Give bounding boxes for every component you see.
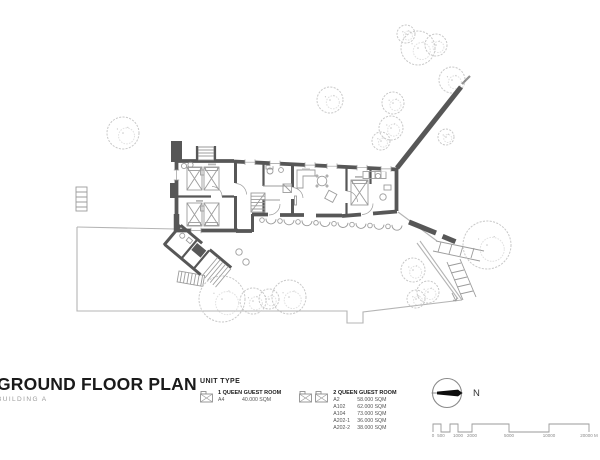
facade-planting-row	[260, 218, 402, 230]
unit-type-legend: UNIT TYPE 1 QUEEN GUEST ROOM A440.000 SQ…	[200, 378, 400, 432]
stepped-path	[433, 241, 484, 301]
boundary-steps-icon	[76, 187, 87, 211]
building-wing	[164, 225, 232, 288]
unit-row: A202-136.000 SQM	[333, 418, 396, 425]
scale-labels: 05001000200050001000020000 M	[431, 433, 597, 441]
north-label: N	[473, 388, 480, 399]
scale-label: 1000	[453, 433, 463, 438]
queen-bed-icon	[299, 391, 313, 403]
unit-row: A440.000 SQM	[218, 397, 281, 404]
page-title: GROUND FLOOR PLAN	[0, 374, 197, 395]
exterior-stair-icon	[197, 146, 215, 161]
north-compass: N	[428, 377, 480, 410]
unit-type-1-queen: 1 QUEEN GUEST ROOM A440.000 SQM	[200, 390, 281, 404]
scale-label: 5000	[504, 433, 514, 438]
legend-heading: UNIT TYPE	[200, 378, 400, 385]
unit-row: A258.000 SQM	[333, 397, 396, 404]
site-boundary	[76, 187, 484, 323]
unit-row: A202-238.000 SQM	[333, 425, 396, 432]
planter-icon	[243, 259, 249, 265]
queen-bed-icon	[200, 391, 214, 403]
scale-label: 0	[432, 433, 435, 438]
scale-label: 10000	[543, 433, 556, 438]
queen-bed-icon	[315, 391, 329, 403]
title-block: GROUND FLOOR PLAN BUILDING A	[0, 374, 197, 403]
scale-bar-icon	[431, 419, 597, 433]
floor-plan-drawing	[0, 0, 600, 345]
scale-label: 20000 M	[580, 433, 598, 438]
north-arrow-icon	[428, 377, 466, 410]
scale-bar: 05001000200050001000020000 M	[431, 419, 597, 441]
scale-label: 500	[437, 433, 445, 438]
unit-name: 1 QUEEN GUEST ROOM	[218, 390, 281, 397]
planter-icon	[236, 249, 242, 255]
unit-row: A10262.000 SQM	[333, 404, 396, 411]
unit-row: A10473.000 SQM	[333, 411, 396, 418]
trees	[107, 25, 511, 322]
page-subtitle: BUILDING A	[0, 396, 197, 403]
unit-name: 2 QUEEN GUEST ROOM	[333, 390, 396, 397]
unit-type-2-queen: 2 QUEEN GUEST ROOM A258.000 SQMA10262.00…	[299, 390, 396, 432]
floor-plan-sheet: GROUND FLOOR PLAN BUILDING A UNIT TYPE 1…	[0, 0, 600, 460]
scale-label: 2000	[467, 433, 477, 438]
